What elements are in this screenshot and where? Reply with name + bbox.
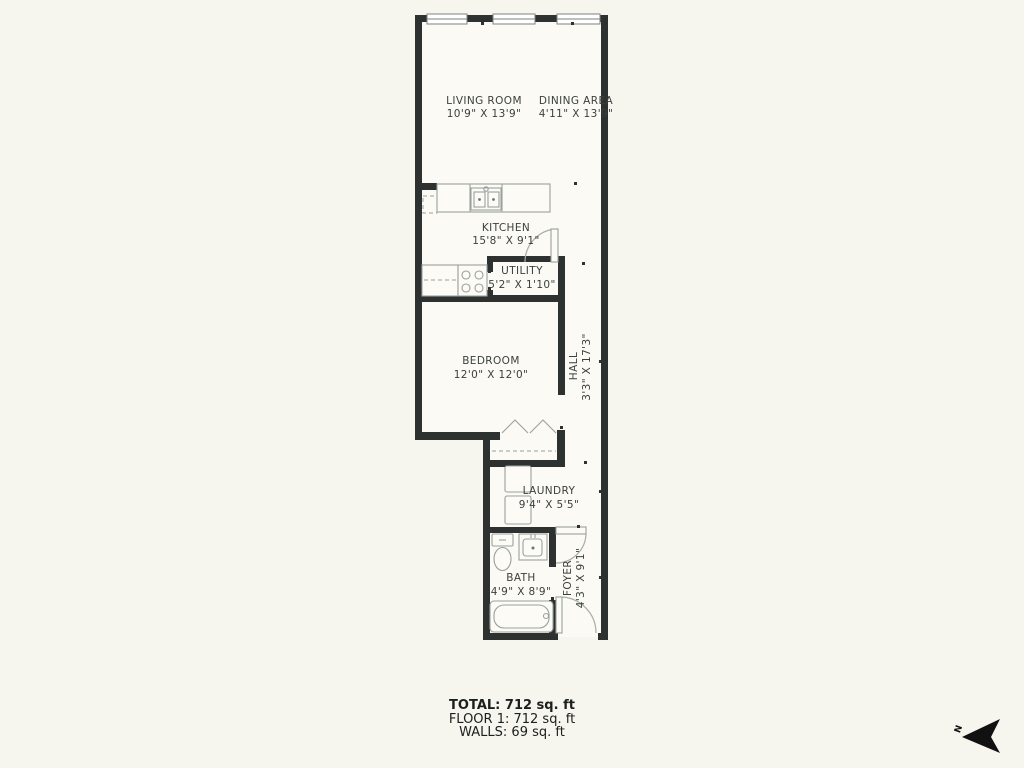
window-icon bbox=[493, 14, 535, 24]
utility-dims: 5'2" X 1'10" bbox=[488, 279, 556, 291]
utility-label: UTILITY bbox=[501, 265, 543, 277]
bath-label: BATH bbox=[506, 572, 535, 584]
kitchen-dims: 15'8" X 9'1" bbox=[472, 235, 540, 247]
kitchen-sink-icon bbox=[471, 187, 501, 210]
hall-dims: 3'3" X 17'3" bbox=[581, 333, 593, 401]
bedroom-dims: 12'0" X 12'0" bbox=[454, 369, 529, 381]
dining-area-label: DINING AREA bbox=[539, 95, 614, 107]
bath-dims: 4'9" X 8'9" bbox=[491, 586, 551, 598]
kitchen-label: KITCHEN bbox=[482, 222, 530, 234]
laundry-label: LAUNDRY bbox=[523, 485, 576, 497]
north-label: N bbox=[953, 724, 965, 735]
toilet-icon bbox=[492, 534, 513, 571]
hall-label: HALL bbox=[568, 352, 580, 380]
floor-plan-page: LIVING ROOM 10'9" X 13'9" DINING AREA 4'… bbox=[0, 0, 1024, 768]
north-arrow: N bbox=[953, 719, 1000, 753]
bedroom-label: BEDROOM bbox=[462, 355, 520, 367]
floor-plan-canvas: LIVING ROOM 10'9" X 13'9" DINING AREA 4'… bbox=[0, 0, 1024, 768]
laundry-dims: 9'4" X 5'5" bbox=[519, 499, 579, 511]
window-icon bbox=[557, 14, 600, 24]
living-room-label: LIVING ROOM bbox=[446, 95, 522, 107]
kitchen-lower-counter bbox=[422, 265, 458, 296]
bathtub-icon bbox=[490, 601, 553, 632]
foyer-dims: 4'3" X 9'1" bbox=[575, 548, 587, 608]
windows bbox=[427, 14, 600, 24]
window-icon bbox=[427, 14, 467, 24]
total-area-text: TOTAL: 712 sq. ft bbox=[449, 698, 575, 713]
summary: TOTAL: 712 sq. ft FLOOR 1: 712 sq. ft WA… bbox=[449, 698, 575, 740]
walls-area-text: WALLS: 69 sq. ft bbox=[459, 725, 565, 740]
north-arrow-icon bbox=[962, 719, 1000, 753]
stove-icon bbox=[458, 265, 487, 296]
living-room-dims: 10'9" X 13'9" bbox=[447, 108, 522, 120]
foyer-label: FOYER bbox=[562, 560, 574, 596]
dining-area-dims: 4'11" X 13'9" bbox=[539, 108, 614, 120]
bathroom-sink-icon bbox=[519, 534, 547, 560]
